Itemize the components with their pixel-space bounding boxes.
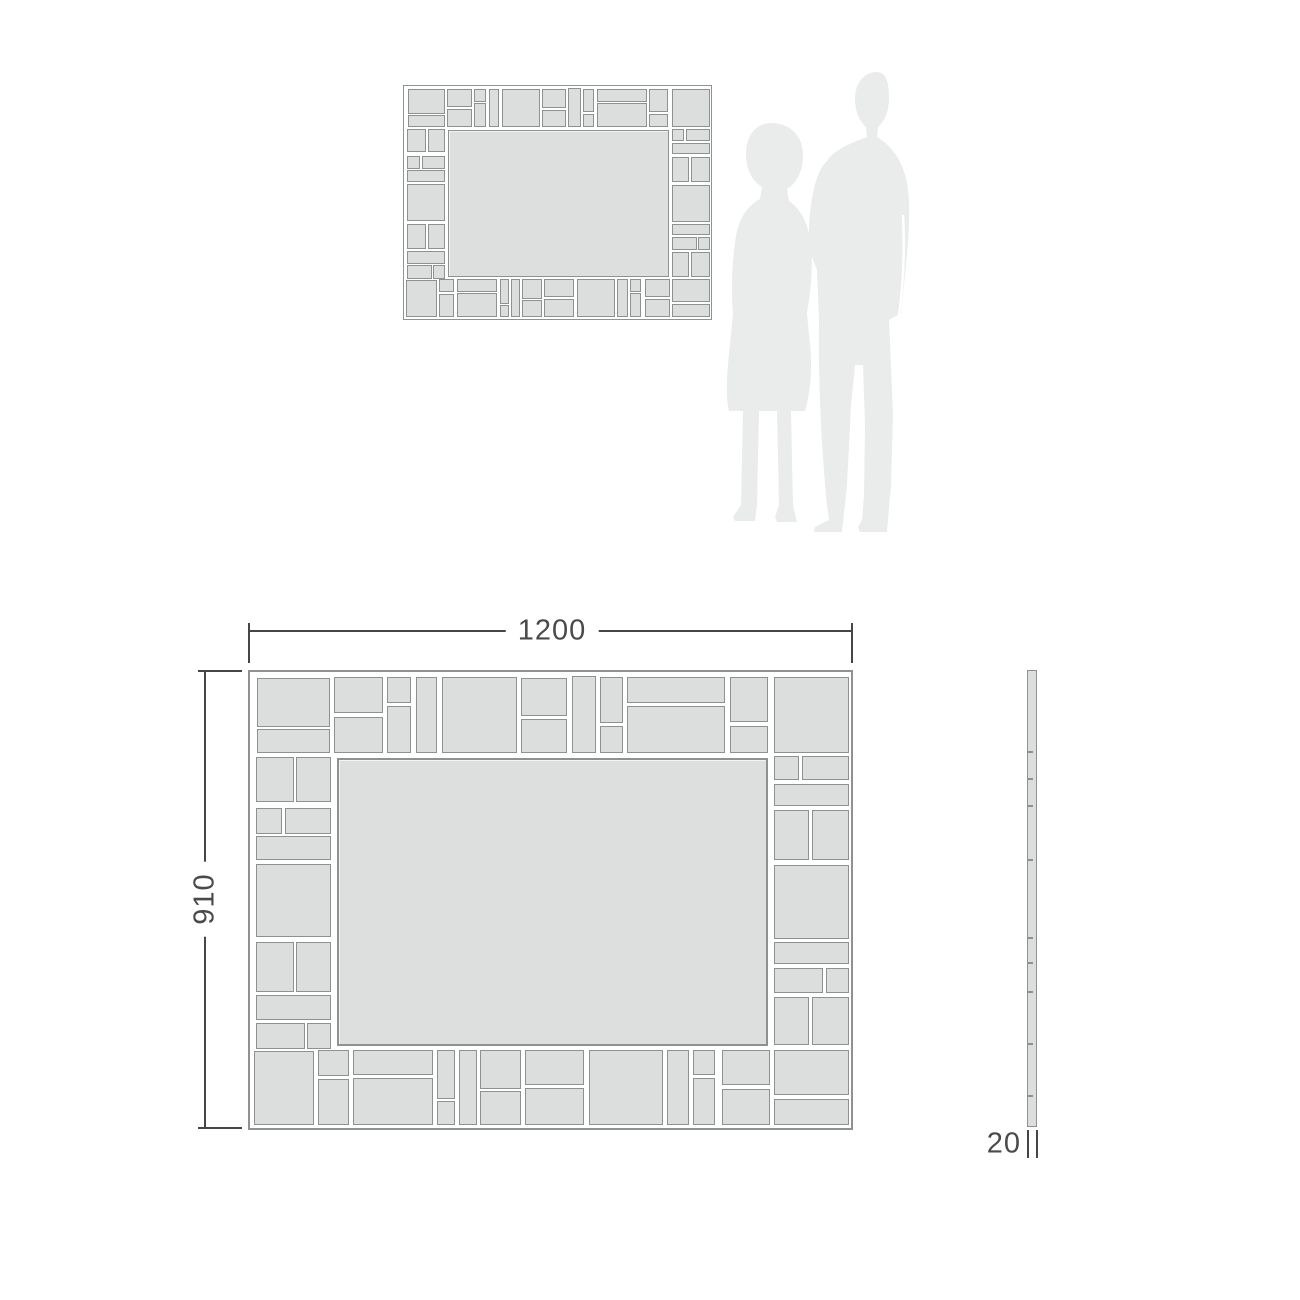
mosaic-tile [522, 279, 543, 299]
mosaic-tile [521, 678, 567, 716]
mosaic-tile [617, 279, 628, 317]
mosaic-tile [649, 89, 668, 112]
mosaic-tile [433, 265, 445, 278]
mosaic-tile [525, 1088, 584, 1125]
mosaic-tile [296, 942, 331, 992]
mosaic-tile [387, 706, 411, 753]
side-profile-notch [1028, 1095, 1033, 1097]
mosaic-tile [672, 157, 690, 183]
mosaic-tile [353, 1078, 433, 1125]
mosaic-tile [407, 265, 432, 278]
mosaic-tile [568, 88, 580, 127]
mosaic-tile [408, 115, 445, 127]
mosaic-tile [521, 719, 567, 753]
side-profile-notch [1028, 991, 1033, 993]
mosaic-tile [672, 129, 685, 141]
mosaic-tile [502, 89, 540, 128]
mosaic-tile [447, 89, 472, 107]
depth-dimension-tick-right [1036, 1130, 1038, 1158]
woman-leg [733, 411, 759, 521]
mosaic-tile [407, 184, 445, 221]
mosaic-tile [406, 280, 437, 318]
mosaic-tile [630, 279, 641, 292]
mosaic-tile [542, 89, 566, 108]
mosaic-tile [407, 224, 426, 250]
mosaic-tile [318, 1050, 349, 1076]
mosaic-tile [256, 864, 331, 937]
mosaic-tile [672, 252, 690, 277]
mosaic-tile [457, 293, 498, 317]
width-dimension-tick-left [248, 623, 250, 663]
mosaic-tile [334, 717, 383, 753]
mosaic-tile [649, 114, 668, 128]
depth-dimension-tick-left [1027, 1130, 1029, 1158]
woman-leg [775, 411, 797, 522]
mosaic-tile [693, 1078, 715, 1125]
mosaic-tile [522, 300, 543, 317]
mosaic-tile [256, 942, 294, 992]
mosaic-tile [577, 279, 615, 317]
mosaic-tile [812, 997, 849, 1045]
mosaic-tile [254, 1051, 314, 1125]
mosaic-tile [583, 114, 595, 128]
man-silhouette [809, 72, 909, 532]
mosaic-tile [544, 279, 574, 297]
mosaic-tile [257, 678, 330, 727]
mosaic-tile [630, 293, 641, 317]
side-profile-notch [1028, 778, 1033, 780]
mosaic-tile [774, 1050, 849, 1095]
mosaic-tile [774, 997, 809, 1045]
mosaic-tile [439, 279, 455, 292]
mosaic-tile [407, 251, 445, 264]
mosaic-tile [387, 677, 411, 703]
depth-dimension-label: 20 [987, 1130, 1025, 1159]
mosaic-tile [645, 299, 670, 317]
width-dimension-tick-right [851, 623, 853, 663]
mosaic-tile [307, 1023, 331, 1049]
mosaic-tile [256, 836, 331, 860]
human-scale-silhouettes [705, 65, 940, 545]
mosaic-tile [334, 677, 383, 713]
mosaic-tile [600, 726, 623, 753]
woman-silhouette [727, 123, 812, 411]
side-profile-notch [1028, 751, 1033, 753]
mosaic-tile [672, 237, 697, 250]
mosaic-tile [428, 129, 446, 152]
mosaic-tile [480, 1050, 521, 1089]
mosaic-tile [774, 677, 849, 753]
mosaic-mirror-frame [248, 670, 853, 1130]
mirror-panel [337, 758, 768, 1046]
mosaic-tile [457, 279, 498, 292]
side-profile-notch [1028, 805, 1033, 807]
mosaic-tile [256, 757, 294, 802]
mosaic-tile [422, 156, 446, 169]
height-dimension-tick-top [198, 670, 242, 672]
mosaic-tile [459, 1050, 477, 1125]
mosaic-tile [802, 756, 849, 780]
mosaic-tile [826, 968, 849, 993]
mosaic-tile [474, 89, 486, 102]
mosaic-tile [774, 1099, 849, 1125]
mosaic-tile [722, 1089, 770, 1125]
mosaic-tile [439, 294, 455, 318]
mosaic-tile [774, 968, 823, 993]
mosaic-tile [812, 810, 849, 860]
mosaic-tile [407, 170, 445, 182]
mosaic-tile [589, 1050, 663, 1125]
mosaic-tile [408, 89, 445, 114]
mosaic-tile [480, 1091, 521, 1125]
dimension-diagram: 1200 910 20 [0, 0, 1300, 1300]
side-profile-notch [1028, 859, 1033, 861]
side-profile-notch [1028, 1043, 1033, 1045]
mosaic-tile [447, 109, 472, 127]
mosaic-tile [296, 757, 331, 802]
mosaic-tile [353, 1050, 433, 1075]
mosaic-tile [442, 677, 517, 753]
mosaic-tile [730, 677, 768, 722]
mosaic-tile [667, 1050, 689, 1125]
mosaic-tile [407, 129, 426, 152]
mosaic-tile [542, 110, 566, 127]
mosaic-tile [774, 810, 809, 860]
mosaic-tile [774, 756, 799, 780]
mosaic-tile [500, 305, 509, 317]
width-dimension-label: 1200 [506, 617, 599, 646]
mosaic-tile [318, 1079, 349, 1125]
mosaic-mirror-frame [403, 85, 712, 320]
mosaic-tile [597, 89, 647, 102]
mosaic-tile [627, 677, 725, 703]
mosaic-tile [474, 103, 486, 127]
mosaic-tile [407, 156, 420, 169]
mirror-panel [448, 130, 668, 277]
mosaic-tile [722, 1050, 770, 1085]
mosaic-tile [774, 784, 849, 806]
mosaic-tile [500, 279, 509, 304]
mosaic-tile [572, 676, 596, 753]
mosaic-tile [256, 1023, 305, 1049]
mosaic-tile [774, 865, 849, 939]
mosaic-tile [437, 1050, 455, 1099]
mosaic-tile [693, 1050, 715, 1075]
mosaic-tile [256, 995, 331, 1020]
mosaic-tile [730, 726, 768, 753]
side-profile-strip [1027, 670, 1037, 1127]
mosaic-tile [597, 103, 647, 127]
mosaic-tile [285, 808, 331, 834]
mosaic-tile [437, 1101, 455, 1125]
mosaic-tile [257, 729, 330, 753]
mosaic-tile [645, 279, 670, 297]
height-dimension-tick-bottom [198, 1127, 242, 1129]
mosaic-tile [774, 942, 849, 964]
mosaic-tile [511, 279, 520, 317]
mosaic-tile [416, 677, 437, 753]
mosaic-tile [600, 677, 623, 723]
mosaic-tile [489, 89, 500, 128]
mosaic-tile [525, 1050, 584, 1085]
mosaic-tile [627, 706, 725, 753]
mosaic-tile [428, 224, 446, 250]
mosaic-tile [256, 808, 282, 834]
mosaic-tile [583, 89, 595, 113]
side-profile-notch [1028, 962, 1033, 964]
mosaic-tile [544, 299, 574, 318]
side-profile-notch [1028, 937, 1033, 939]
height-dimension-label: 910 [191, 861, 220, 936]
